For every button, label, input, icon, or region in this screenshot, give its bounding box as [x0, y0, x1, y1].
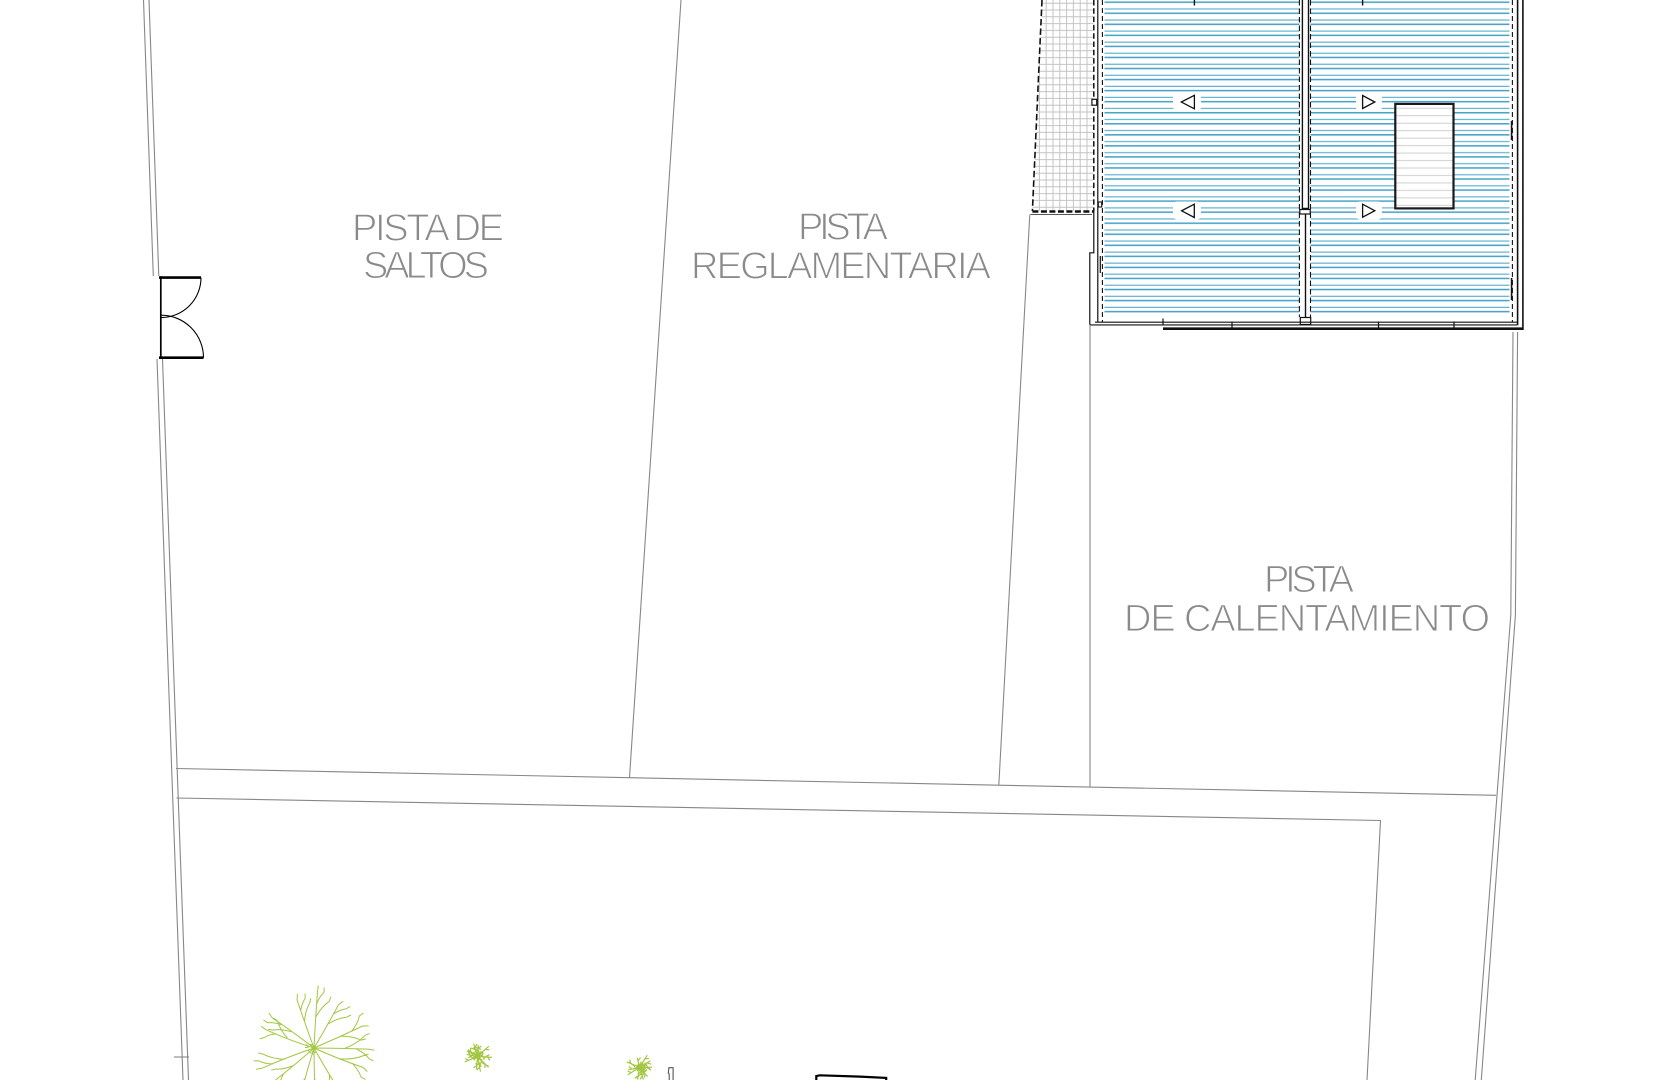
svg-text:PISTA: PISTA	[1264, 559, 1355, 601]
svg-text:REGLAMENTARIA: REGLAMENTARIA	[691, 246, 992, 288]
svg-text:PISTA: PISTA	[798, 207, 889, 249]
svg-text:SALTOS: SALTOS	[363, 245, 489, 287]
svg-text:PISTA DE: PISTA DE	[352, 208, 504, 250]
svg-text:DE CALENTAMIENTO: DE CALENTAMIENTO	[1124, 598, 1490, 640]
